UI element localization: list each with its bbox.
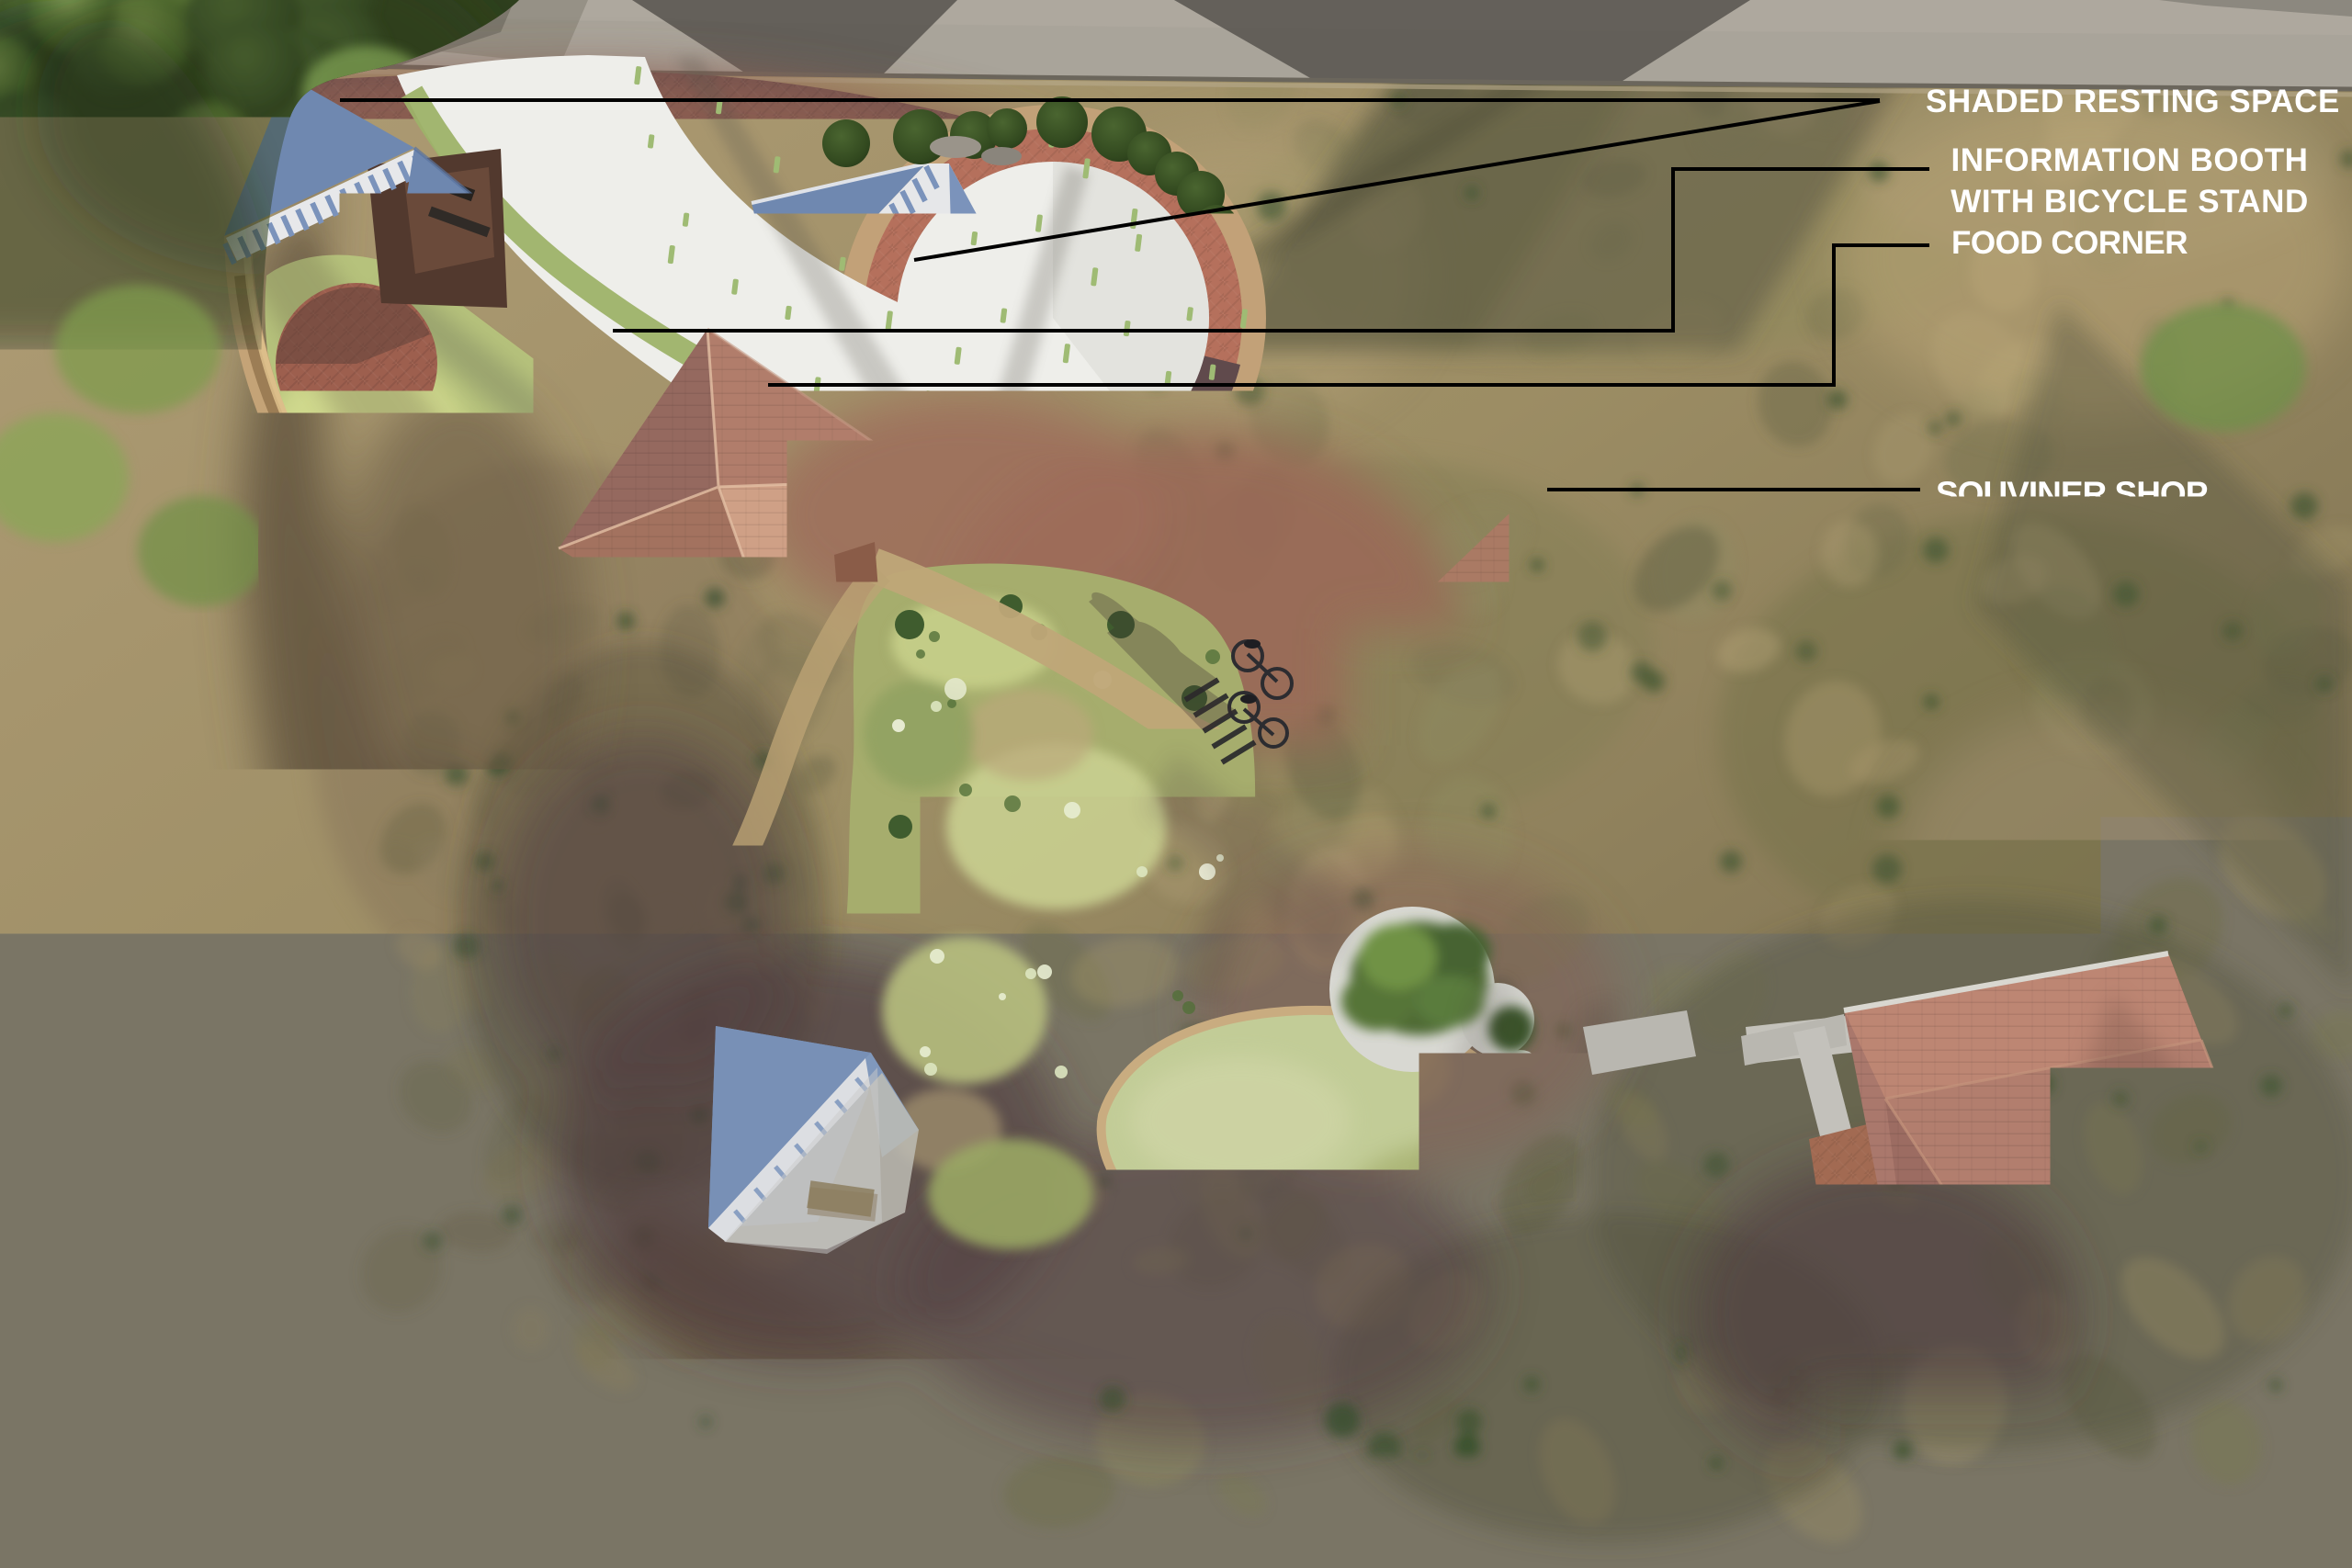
svg-text:WITH BICYCLE STAND: WITH BICYCLE STAND bbox=[1951, 184, 2308, 220]
svg-text:SOUVINER SHOP: SOUVINER SHOP bbox=[1936, 475, 2208, 513]
svg-text:PUBLIC TOILET: PUBLIC TOILET bbox=[1951, 859, 2199, 895]
svg-text:PUBLIC TOILET: PUBLIC TOILET bbox=[1948, 769, 2196, 805]
svg-text:(FEMALE ENTRY): (FEMALE ENTRY) bbox=[1934, 801, 2211, 837]
svg-text:SHADED RESTING SPACE: SHADED RESTING SPACE bbox=[1926, 84, 2340, 119]
svg-text:INFORMATION BOOTH: INFORMATION BOOTH bbox=[1951, 142, 2309, 178]
svg-text:FOOD CORNER: FOOD CORNER bbox=[1951, 225, 2188, 261]
svg-text:(MALE ENTRY): (MALE ENTRY) bbox=[1958, 891, 2193, 927]
